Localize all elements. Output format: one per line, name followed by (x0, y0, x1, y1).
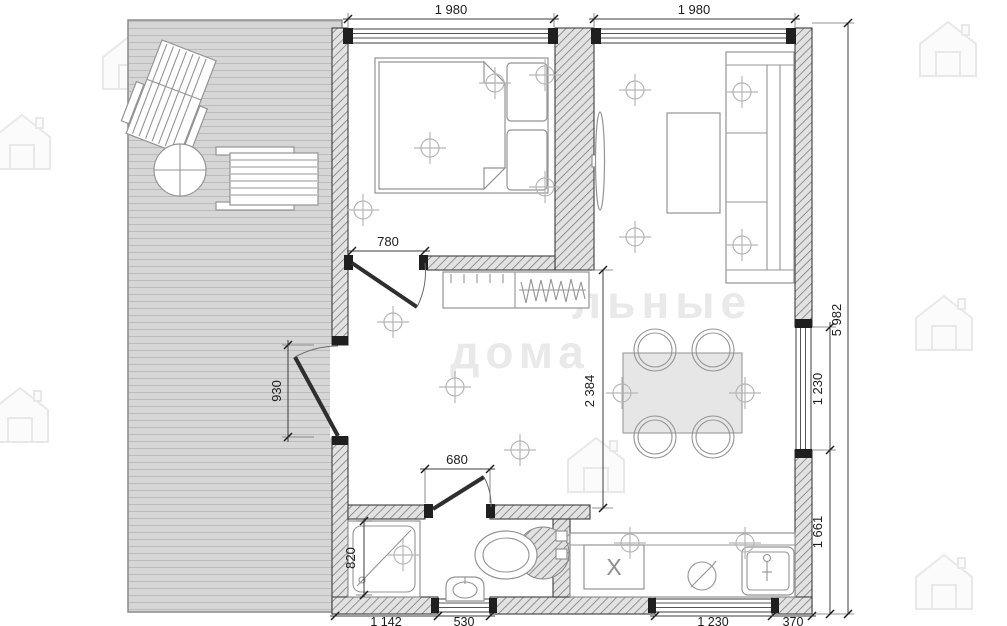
svg-text:930: 930 (269, 380, 284, 402)
towel-rail-icon (556, 549, 567, 559)
kitchen-sink-icon (742, 547, 794, 595)
exterior-wall-left-lower (332, 437, 348, 614)
dimension-right-window: 1 230 (810, 322, 836, 455)
outdoor-table-icon (154, 144, 206, 196)
watermark-house-icon (0, 115, 50, 169)
bathroom-fixtures (348, 521, 569, 601)
towel-rail-icon (556, 531, 567, 541)
ceiling-light-icon (377, 306, 409, 338)
exterior-wall-right-upper (795, 28, 812, 327)
watermark-house-icon (920, 22, 976, 76)
window-bottom-kitchen (655, 599, 772, 612)
watermark-house-icon (916, 555, 972, 609)
floor-plan-canvas: льные дома (0, 0, 1007, 626)
watermark-house-icon (568, 438, 624, 492)
dimension-bedroom-door: 780 (347, 234, 430, 255)
wardrobe-icon (443, 272, 589, 308)
window-top-bedroom (348, 29, 553, 43)
bed-icon (375, 58, 548, 193)
watermark-text: льные (572, 276, 752, 328)
dimension-bottom-bath-window: 530 (438, 612, 495, 626)
pillow (507, 130, 547, 190)
door-bedroom (352, 263, 425, 307)
bathroom-sink-icon (446, 577, 484, 601)
watermark-house-icon (916, 296, 972, 350)
ceiling-light-icon (619, 221, 651, 253)
shower-tray-icon (348, 521, 420, 597)
svg-text:2 384: 2 384 (582, 375, 597, 408)
pillow (507, 63, 547, 121)
watermark-text: дома (450, 326, 590, 378)
toilet-icon (475, 531, 537, 579)
door-bathroom (433, 477, 491, 509)
svg-text:1 661: 1 661 (810, 516, 825, 549)
watermark-house-icon (0, 388, 48, 442)
exterior-wall-bottom-mid (490, 597, 655, 614)
window-right-living (796, 327, 811, 450)
svg-text:780: 780 (377, 234, 399, 249)
svg-text:5 982: 5 982 (829, 304, 844, 337)
svg-text:530: 530 (454, 615, 475, 626)
dimension-top-bedroom: 1 980 (343, 2, 559, 27)
interior-wall-bathroom-right (490, 505, 590, 519)
interior-wall-bedroom-living (555, 28, 594, 270)
svg-text:1 980: 1 980 (435, 2, 468, 17)
ceiling-light-icon (619, 74, 651, 106)
dimension-top-living: 1 980 (589, 2, 800, 27)
floor-plan-drawing: льные дома (0, 0, 1007, 626)
dimension-right-kitchen: 1 661 (810, 450, 834, 618)
dining-set (623, 329, 742, 458)
exterior-wall-left-upper (332, 28, 348, 345)
kitchen-counter: X (570, 533, 795, 597)
interior-wall-bedroom-hall (427, 256, 555, 270)
ceiling-light-icon (504, 434, 536, 466)
ceiling-light-icon (347, 194, 379, 226)
dimension-bottom-kitchen-window: 1 230 (650, 612, 777, 626)
sofa-icon (726, 52, 794, 283)
svg-text:1 230: 1 230 (697, 615, 728, 626)
deck-terrace (118, 20, 342, 612)
svg-text:1 230: 1 230 (810, 373, 825, 406)
interior-wall-bathroom-left (348, 505, 425, 519)
svg-text:680: 680 (446, 452, 468, 467)
svg-text:1 980: 1 980 (678, 2, 711, 17)
svg-text:370: 370 (783, 615, 804, 626)
bedroom-furniture (375, 58, 548, 193)
window-top-living (594, 29, 795, 43)
kitchen-unit-x-label: X (606, 554, 621, 580)
garden-bench-icon (216, 147, 318, 210)
svg-text:820: 820 (343, 547, 358, 569)
coffee-table-icon (667, 113, 720, 213)
svg-text:1 142: 1 142 (370, 615, 401, 626)
exterior-wall-bottom-left (332, 597, 438, 614)
